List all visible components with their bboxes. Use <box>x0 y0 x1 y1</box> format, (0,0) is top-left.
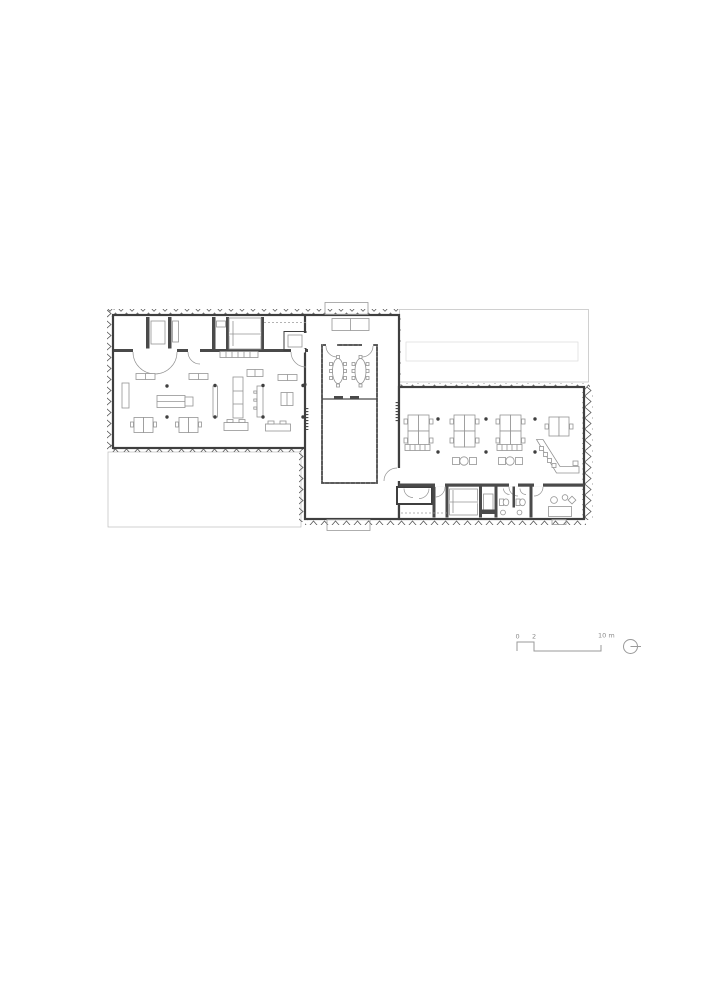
column-dot <box>213 415 216 418</box>
roof-skylight-outline <box>406 342 578 361</box>
sideboard <box>350 396 359 400</box>
column-dot <box>213 384 216 387</box>
large-desk <box>157 396 193 408</box>
sideboard-row <box>405 445 430 451</box>
column-dot <box>301 415 304 418</box>
desk-cluster <box>404 415 433 447</box>
desk-cluster <box>496 415 525 447</box>
work-table <box>136 374 155 380</box>
chair <box>562 495 568 501</box>
column-dot <box>533 450 536 453</box>
strip-wall <box>399 484 584 487</box>
sink <box>501 510 506 515</box>
vestibule <box>397 487 432 504</box>
terrace-hatch-area <box>108 452 301 527</box>
north-symbol-icon <box>624 640 642 654</box>
office-desk <box>549 507 572 517</box>
break-table-group <box>499 457 523 465</box>
sideboard <box>334 396 343 400</box>
column-dot <box>436 417 439 420</box>
shelf-between-columns <box>213 386 218 417</box>
column-dot <box>261 384 264 387</box>
desk-pair-single <box>545 417 573 436</box>
toilet <box>516 499 525 506</box>
column-dot <box>165 384 168 387</box>
sink <box>517 510 522 515</box>
scale-bar-line <box>517 642 601 651</box>
column-dot <box>165 415 168 418</box>
column-dot <box>533 417 536 420</box>
scale-label-2: 2 <box>532 633 536 641</box>
column-dot <box>261 415 264 418</box>
column-dot <box>484 417 487 420</box>
roof-hatch-area <box>400 310 589 383</box>
sideboard-row <box>497 445 522 451</box>
cabinet <box>122 383 129 408</box>
desk-pair <box>131 418 157 433</box>
toilet <box>500 499 509 506</box>
scale-label-10m: 10 m <box>598 632 615 640</box>
work-table <box>189 374 208 380</box>
inner-meeting-room <box>322 344 377 483</box>
column-dot <box>484 450 487 453</box>
desk-cluster <box>450 415 479 447</box>
scale-label-0: 0 <box>516 633 520 641</box>
column-dot <box>303 383 306 386</box>
floor-plan-drawing: 0 2 10 m <box>0 0 707 1000</box>
shelf-unit <box>281 393 293 406</box>
floor-plan-page: 0 2 10 m <box>0 0 707 1000</box>
scale-bar: 0 2 10 m <box>516 632 615 652</box>
work-table <box>278 375 297 381</box>
chair <box>551 497 558 504</box>
break-table-group <box>453 457 477 465</box>
desk-pair <box>176 418 202 433</box>
lockers <box>220 352 258 358</box>
work-table <box>247 370 263 377</box>
shelving-unit <box>233 377 243 418</box>
column-dot <box>436 450 439 453</box>
